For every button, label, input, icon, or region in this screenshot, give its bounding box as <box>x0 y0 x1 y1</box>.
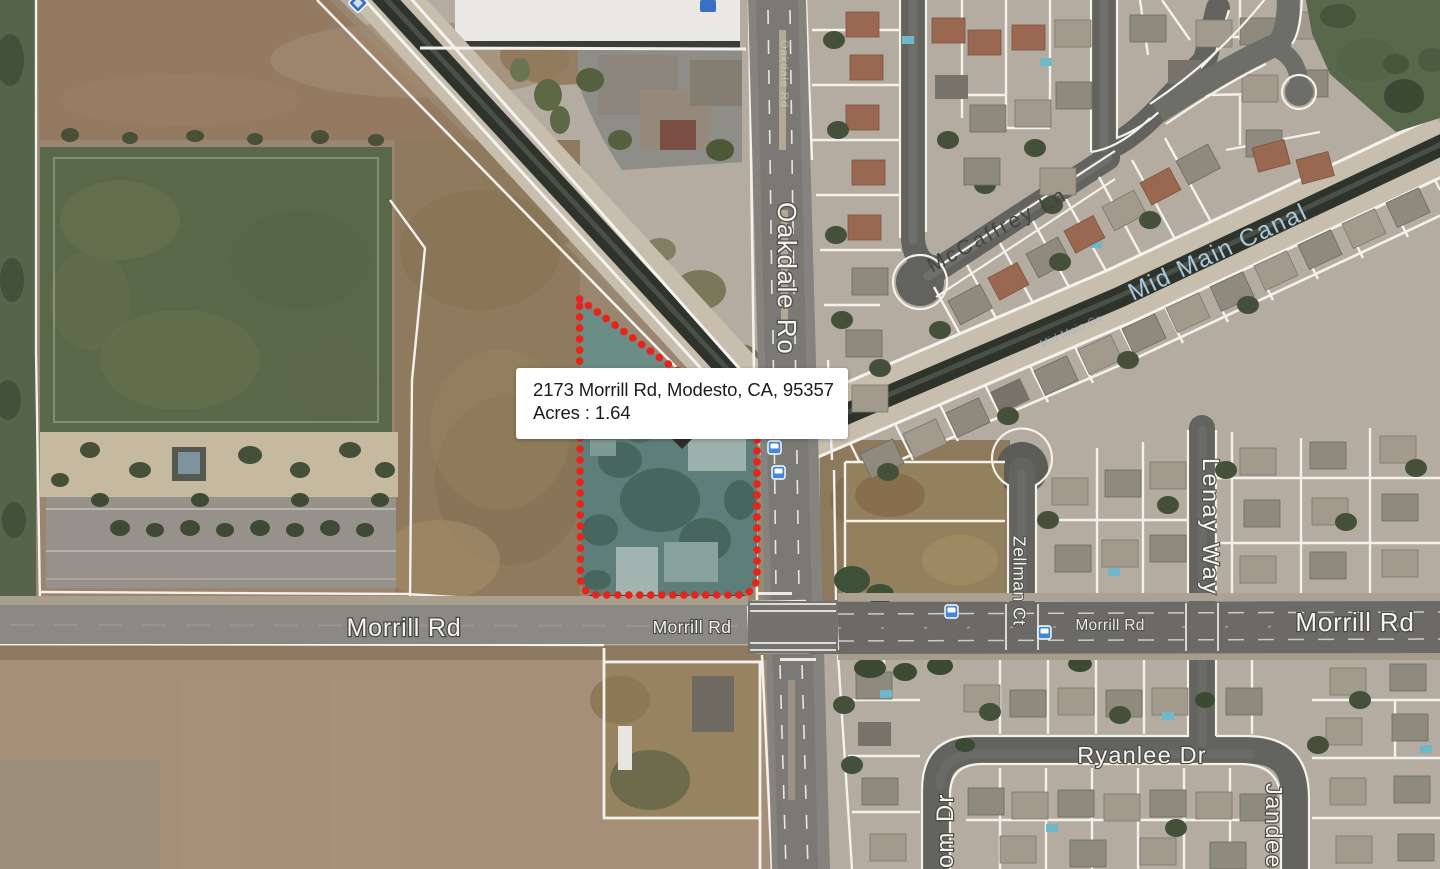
svg-text:Morrill Rd: Morrill Rd <box>653 617 732 637</box>
svg-text:Lenay Way: Lenay Way <box>1198 458 1224 596</box>
svg-text:Morrill Rd: Morrill Rd <box>1075 617 1144 634</box>
svg-text:Oakdale Rd: Oakdale Rd <box>778 40 790 108</box>
svg-text:rom Dr: rom Dr <box>932 793 959 869</box>
svg-text:Oakdale Ro: Oakdale Ro <box>772 202 802 355</box>
svg-text:Morrill Rd: Morrill Rd <box>1295 607 1414 637</box>
svg-text:Zellman Ct: Zellman Ct <box>1010 536 1030 626</box>
svg-text:Ryanlee Dr: Ryanlee Dr <box>1077 742 1207 768</box>
svg-text:Jandee: Jandee <box>1261 783 1287 869</box>
svg-text:Morrill Rd: Morrill Rd <box>347 614 462 642</box>
